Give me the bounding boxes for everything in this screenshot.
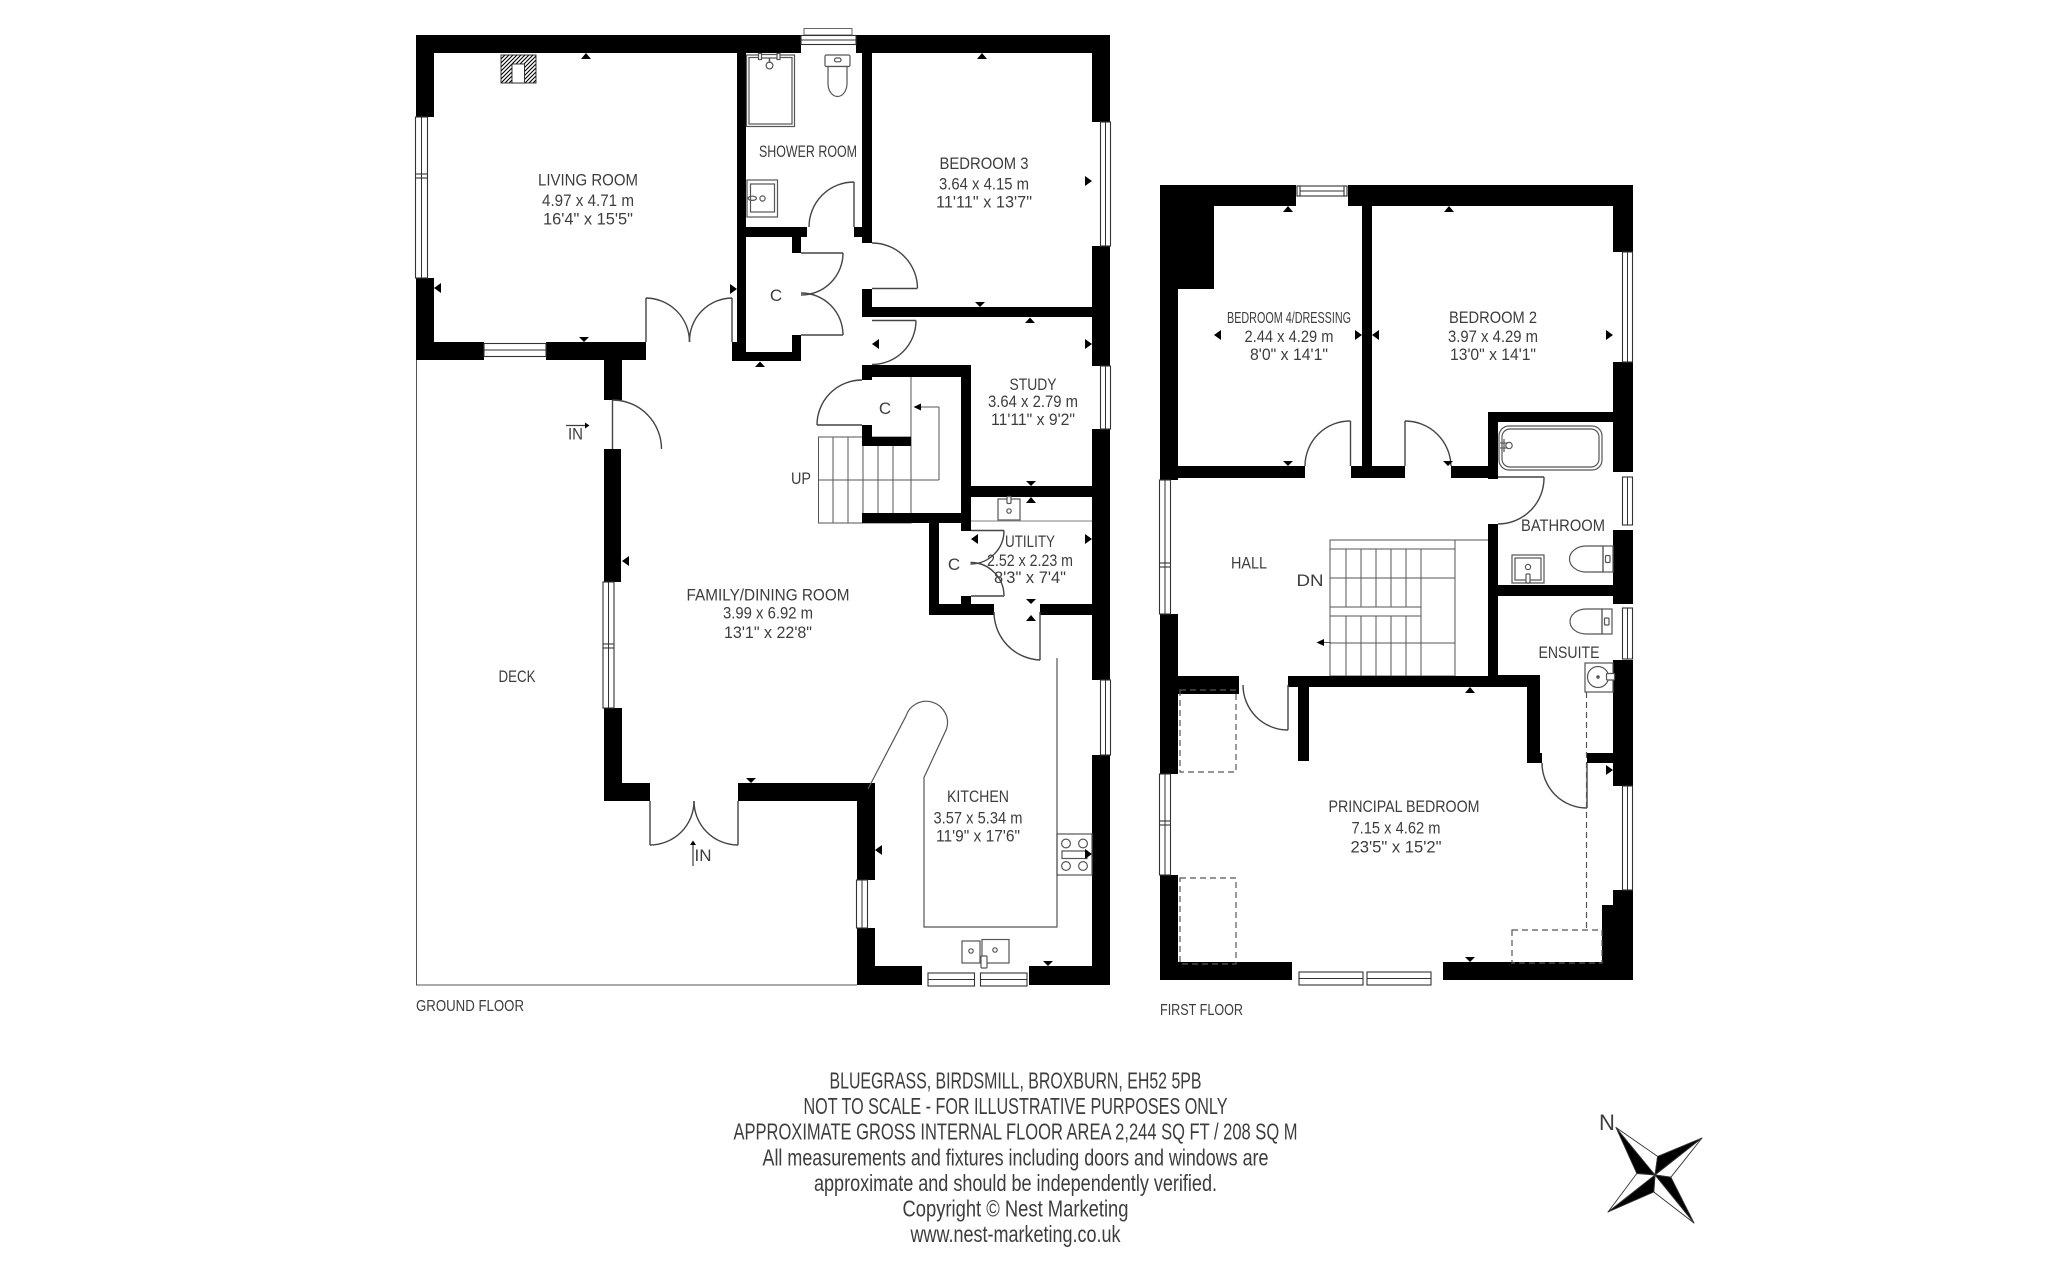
- svg-text:All measurements and fixtures: All measurements and fixtures including …: [763, 1144, 1269, 1170]
- svg-text:C: C: [770, 286, 782, 305]
- svg-text:DECK: DECK: [499, 667, 537, 686]
- svg-text:GROUND FLOOR: GROUND FLOOR: [416, 998, 524, 1015]
- svg-text:PRINCIPAL BEDROOM: PRINCIPAL BEDROOM: [1329, 797, 1480, 816]
- svg-text:Copyright © Nest Marketing: Copyright © Nest Marketing: [903, 1196, 1129, 1222]
- svg-text:IN: IN: [695, 846, 712, 865]
- svg-text:C: C: [948, 555, 960, 574]
- svg-text:KITCHEN: KITCHEN: [947, 787, 1009, 806]
- svg-text:SHOWER ROOM: SHOWER ROOM: [759, 142, 857, 161]
- svg-text:3.64 x 2.79 m: 3.64 x 2.79 m: [988, 392, 1078, 411]
- svg-text:8'0" x 14'1": 8'0" x 14'1": [1250, 345, 1328, 364]
- svg-text:2.44 x 4.29 m: 2.44 x 4.29 m: [1245, 327, 1334, 346]
- svg-text:BEDROOM 4/DRESSING: BEDROOM 4/DRESSING: [1227, 310, 1351, 327]
- svg-text:UP: UP: [791, 469, 811, 488]
- svg-text:BLUEGRASS, BIRDSMILL, BROXBURN: BLUEGRASS, BIRDSMILL, BROXBURN, EH52 5PB: [830, 1068, 1202, 1094]
- svg-text:23'5" x 15'2": 23'5" x 15'2": [1351, 838, 1442, 857]
- svg-text:FIRST FLOOR: FIRST FLOOR: [1160, 1002, 1243, 1019]
- svg-text:11'9" x 17'6": 11'9" x 17'6": [936, 827, 1020, 846]
- svg-text:11'11" x 13'7": 11'11" x 13'7": [936, 193, 1032, 212]
- svg-text:13'0" x 14'1": 13'0" x 14'1": [1450, 345, 1536, 364]
- svg-text:NOT TO SCALE - FOR ILLUSTRATIV: NOT TO SCALE - FOR ILLUSTRATIVE PURPOSES…: [804, 1093, 1228, 1119]
- svg-text:www.nest-marketing.co.uk: www.nest-marketing.co.uk: [910, 1221, 1121, 1247]
- svg-text:IN: IN: [568, 425, 583, 444]
- svg-text:BEDROOM 2: BEDROOM 2: [1449, 308, 1537, 327]
- svg-text:3.99 x 6.92 m: 3.99 x 6.92 m: [723, 604, 813, 623]
- svg-text:4.97 x 4.71 m: 4.97 x 4.71 m: [542, 191, 634, 210]
- svg-text:ENSUITE: ENSUITE: [1539, 643, 1600, 662]
- svg-text:FAMILY/DINING ROOM: FAMILY/DINING ROOM: [687, 586, 850, 605]
- svg-text:N: N: [1599, 1110, 1615, 1135]
- svg-text:3.57 x 5.34 m: 3.57 x 5.34 m: [934, 809, 1023, 828]
- svg-text:APPROXIMATE GROSS INTERNAL FLO: APPROXIMATE GROSS INTERNAL FLOOR AREA 2,…: [734, 1119, 1298, 1145]
- svg-text:DN: DN: [1297, 571, 1324, 590]
- svg-text:7.15 x 4.62 m: 7.15 x 4.62 m: [1352, 819, 1441, 838]
- svg-text:16'4" x 15'5": 16'4" x 15'5": [543, 210, 633, 229]
- svg-text:11'11" x 9'2": 11'11" x 9'2": [991, 410, 1075, 429]
- svg-text:BEDROOM 3: BEDROOM 3: [940, 154, 1029, 173]
- svg-text:8'3" x 7'4": 8'3" x 7'4": [994, 568, 1066, 587]
- svg-text:3.64 x 4.15 m: 3.64 x 4.15 m: [939, 175, 1029, 194]
- svg-text:3.97 x 4.29 m: 3.97 x 4.29 m: [1448, 327, 1538, 346]
- svg-text:LIVING ROOM: LIVING ROOM: [538, 171, 638, 190]
- svg-text:13'1" x 22'8": 13'1" x 22'8": [724, 623, 812, 642]
- svg-text:approximate and should be inde: approximate and should be independently …: [814, 1170, 1217, 1196]
- svg-text:UTILITY: UTILITY: [1005, 532, 1055, 551]
- svg-text:BATHROOM: BATHROOM: [1521, 516, 1605, 535]
- svg-text:C: C: [879, 399, 891, 418]
- svg-text:HALL: HALL: [1231, 554, 1267, 573]
